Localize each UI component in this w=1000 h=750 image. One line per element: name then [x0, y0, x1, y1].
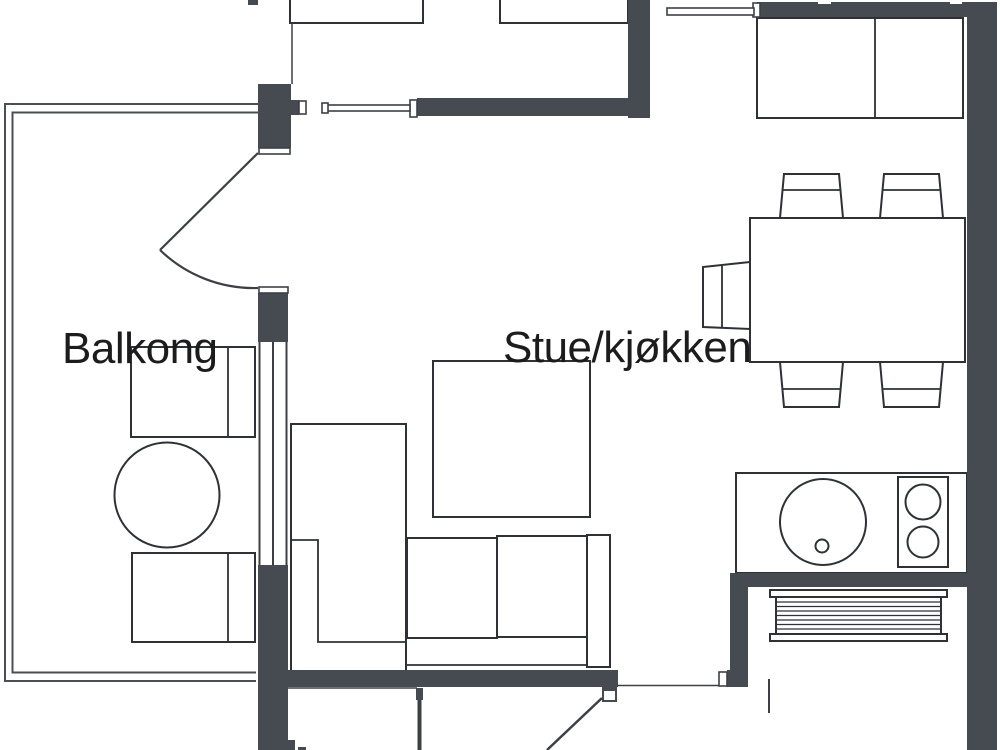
living-kitchen-label: Stue/kjøkken [503, 323, 751, 372]
top-wall-notch [950, 0, 962, 4]
floor-plan-drawing: Balkong Stue/kjøkken [0, 0, 1000, 750]
dining-table [750, 218, 965, 362]
balcony-label: Balkong [62, 324, 218, 373]
radiator-fins [776, 602, 941, 629]
kitchen-wall-cabinets [757, 18, 963, 118]
dining-chair-bottom-left [780, 362, 843, 407]
kitchen-sink [780, 479, 866, 565]
entrance-jamb-notch [604, 691, 615, 700]
dining-chair-top-right [880, 174, 943, 218]
radiator [770, 590, 947, 641]
dining-chair-top-left [780, 174, 843, 218]
balcony-door-swing [160, 153, 258, 288]
entrance-door-swing [547, 686, 719, 750]
coffee-table-square [433, 361, 590, 517]
bedroom-cabinet-left [290, 0, 423, 84]
top-wall-notch [818, 0, 831, 4]
kitchen-stove-two-burners [898, 477, 948, 567]
sliding-door-leaf-top [667, 8, 754, 15]
sliding-door-leaf-left [322, 103, 410, 113]
lower-room-walls [288, 679, 769, 750]
bedroom-cabinet-right [500, 0, 628, 23]
dining-chair-bottom-right [880, 362, 943, 407]
dining-chair-left [703, 262, 750, 329]
balcony-chair-bottom [132, 553, 255, 642]
floor-plan: Balkong Stue/kjøkken [0, 0, 1000, 750]
interior-window [258, 342, 288, 565]
balcony-round-table [115, 443, 220, 548]
